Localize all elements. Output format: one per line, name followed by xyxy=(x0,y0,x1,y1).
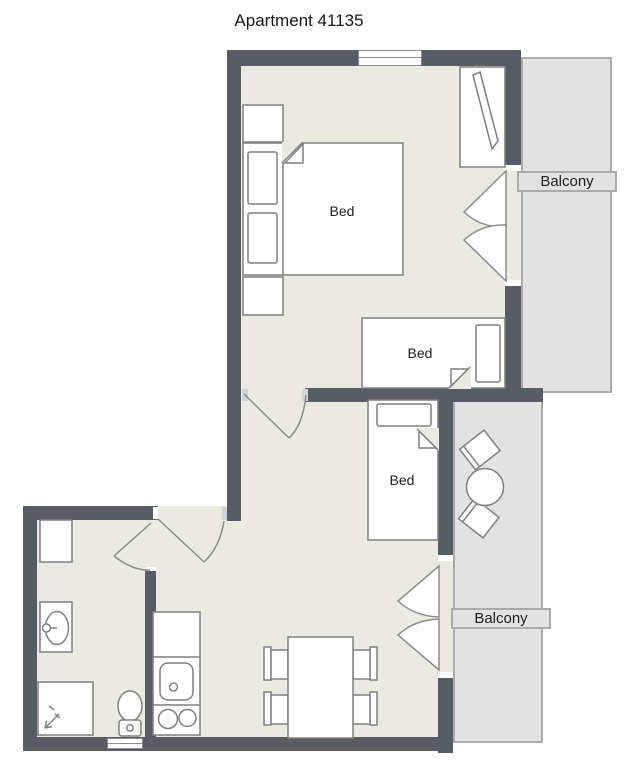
living-balcony-french-door xyxy=(398,566,439,670)
hall-door-swing xyxy=(158,519,224,562)
bedroom-door-swing xyxy=(244,394,306,438)
bedroom-balcony-french-door xyxy=(464,171,506,281)
dining-chair-seat xyxy=(353,650,370,679)
kitchen-sink xyxy=(160,663,193,700)
floorplan-page: Apartment 41135 xyxy=(0,0,637,768)
balcony-label-bottom: Balcony xyxy=(451,608,551,629)
balcony-chair xyxy=(460,430,500,470)
nightstand xyxy=(243,277,283,315)
washing-machine xyxy=(40,520,72,562)
toilet-flush-button xyxy=(127,725,133,731)
bathroom-door-swing xyxy=(114,523,151,570)
floorplan-drawing xyxy=(0,0,637,768)
dining-chair-back xyxy=(264,647,271,680)
dining-table xyxy=(288,637,353,738)
pillow xyxy=(248,152,277,204)
dining-chair-seat xyxy=(271,650,288,679)
bed-label-single: Bed xyxy=(362,472,442,488)
nightstand xyxy=(243,105,283,142)
bed-label-small: Bed xyxy=(380,345,460,361)
dining-chair-seat xyxy=(353,695,370,724)
dining-chair-back xyxy=(370,647,377,680)
dining-chair-back xyxy=(264,692,271,725)
dining-chair-seat xyxy=(271,695,288,724)
pillow xyxy=(377,404,431,426)
toilet-bowl xyxy=(118,691,142,721)
balcony-round-table xyxy=(467,469,504,506)
sink-drain xyxy=(170,683,178,691)
balcony-label-top: Balcony xyxy=(517,171,617,192)
sink-tap-knob xyxy=(43,624,51,632)
stove-burner xyxy=(179,710,196,727)
pillow xyxy=(248,213,277,263)
pillow xyxy=(476,325,500,382)
stove-burner xyxy=(159,710,178,729)
bed-label-main: Bed xyxy=(302,203,382,219)
dining-chair-back xyxy=(370,692,377,725)
